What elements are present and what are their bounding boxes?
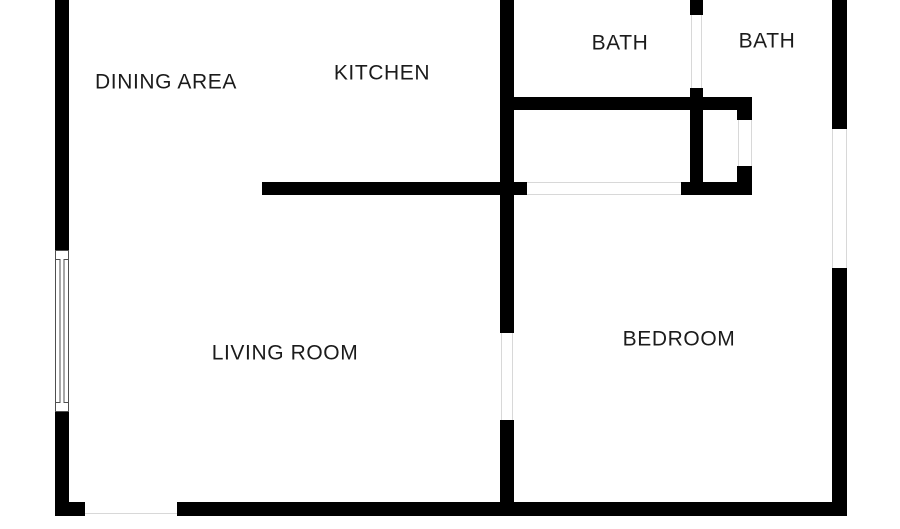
kitchen-south-wall [262,182,527,195]
right-exterior-wall-lower [832,268,847,516]
patio-opening-line-left [832,129,833,268]
window-center-channel [60,259,65,403]
entry-opening-line [85,513,177,514]
hallway-opening-bottom-line [527,194,681,195]
closet-right-stub-upper [737,110,752,120]
room-label-dining-area: DINING AREA [95,72,237,93]
bedroom-door-line-left [501,333,502,420]
bedroom-door-line-right [512,333,513,420]
room-label-living-room: LIVING ROOM [212,343,359,364]
closet-opening-line-left [738,120,739,166]
room-label-bath-right: BATH [739,31,796,52]
center-wall-lower [500,420,514,516]
bath-door-line-left [691,15,692,88]
bath-divider-stub [690,0,703,15]
center-wall-upper [500,0,514,333]
left-exterior-wall-upper [55,0,69,250]
room-label-bath-left: BATH [592,33,649,54]
floor-plan: DINING AREAKITCHENBATHBATHLIVING ROOMBED… [0,0,900,529]
closet-right-stub-lower [737,166,752,182]
right-exterior-wall-upper [832,0,847,129]
baths-south-wall [500,97,752,110]
hallway-opening-top-line [527,182,681,183]
closet-south-wall [681,182,752,195]
living-room-window [55,250,69,412]
room-label-kitchen: KITCHEN [334,63,430,84]
closet-opening-line-right [751,120,752,166]
bath-door-line-right [701,15,702,88]
patio-opening-line-right [846,129,847,268]
room-label-bedroom: BEDROOM [623,329,736,350]
left-exterior-wall-lower [55,412,69,516]
bottom-wall-left-foot [55,502,85,516]
